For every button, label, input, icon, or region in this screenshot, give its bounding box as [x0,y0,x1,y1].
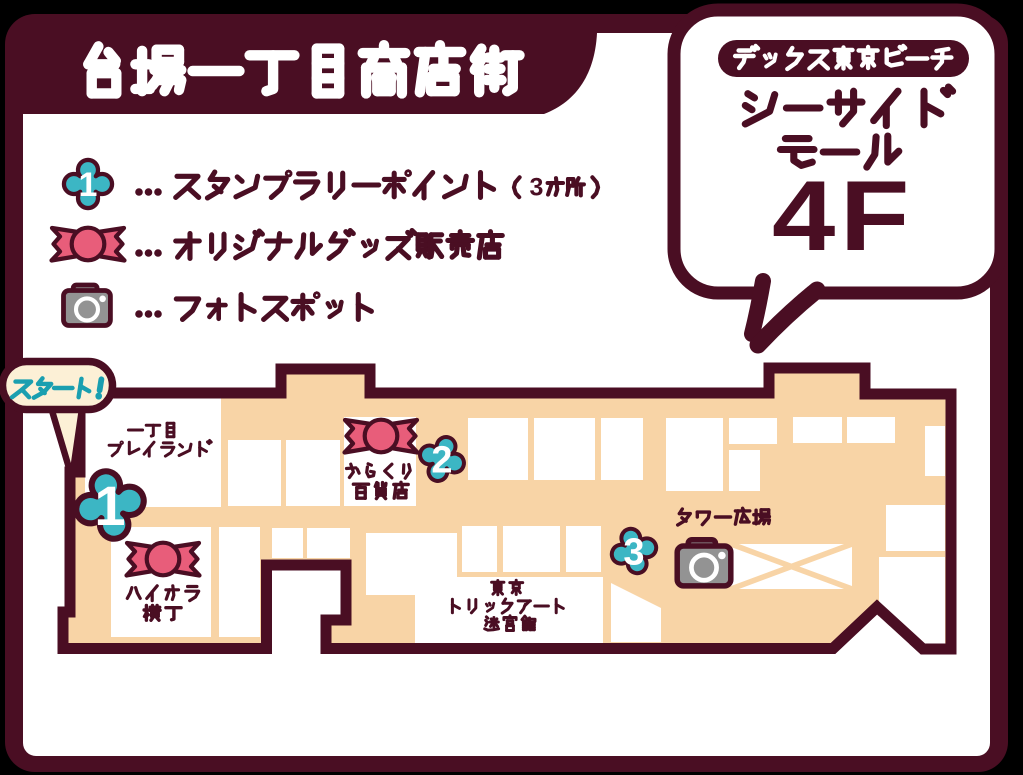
svg-text:2: 2 [431,440,452,482]
svg-text:1: 1 [94,474,125,537]
svg-text:4F: 4F [772,160,914,271]
svg-text:3: 3 [623,532,644,574]
svg-text:1: 1 [79,166,98,204]
svg-text:3: 3 [530,173,544,201]
